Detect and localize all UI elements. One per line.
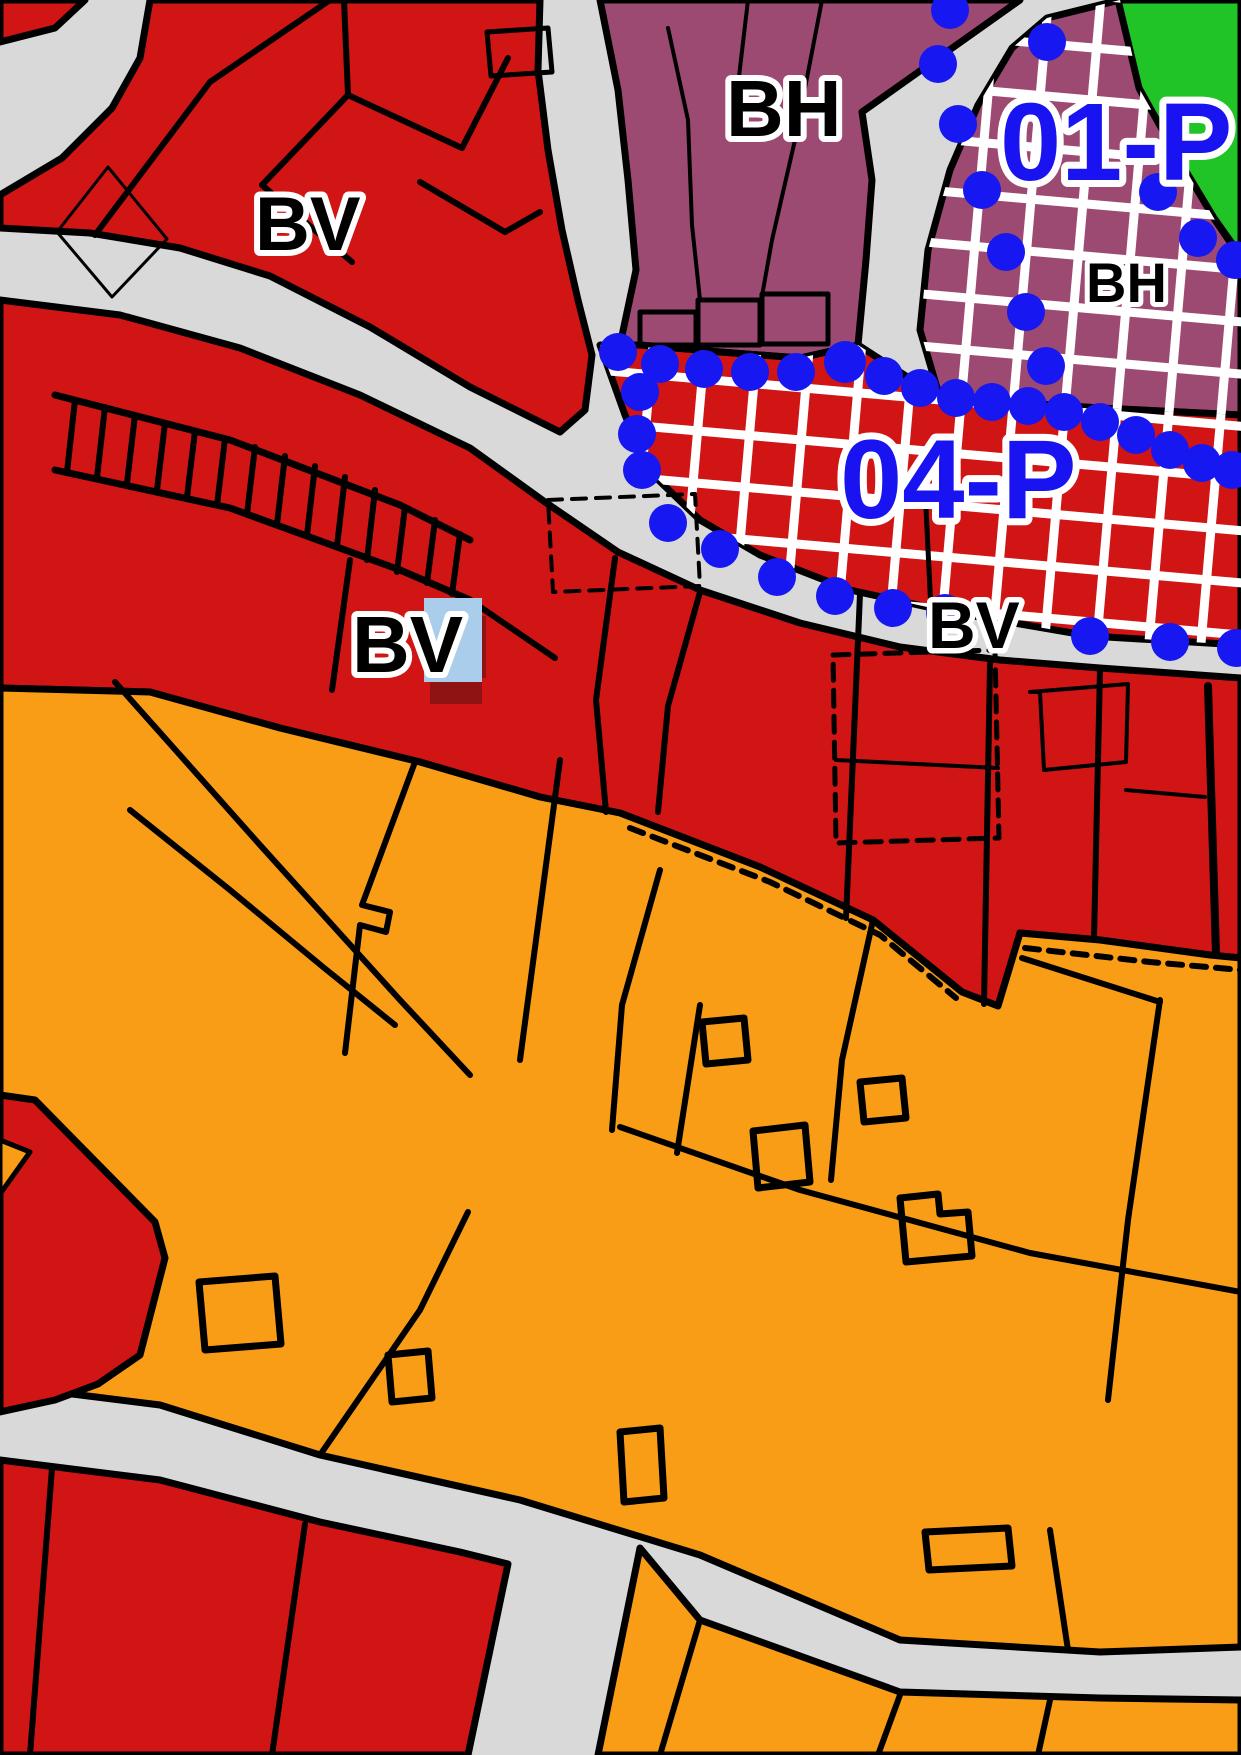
plan-label-01p: 01-P	[1000, 81, 1232, 204]
zone-label-bv-middle[interactable]: BV	[352, 600, 463, 689]
zone-label-bv-top-left: BV	[255, 182, 361, 267]
zone-label-bh-top: BH	[726, 64, 842, 153]
plan-label-04p: 04-P	[840, 417, 1077, 542]
zone-label-bv-right: BV	[928, 588, 1020, 662]
zone-label-bh-right: BH	[1086, 251, 1167, 314]
map-svg: BV BH BH 01-P 04-P BV BV	[0, 0, 1241, 1755]
zoning-map-canvas: BV BH BH 01-P 04-P BV BV	[0, 0, 1241, 1755]
